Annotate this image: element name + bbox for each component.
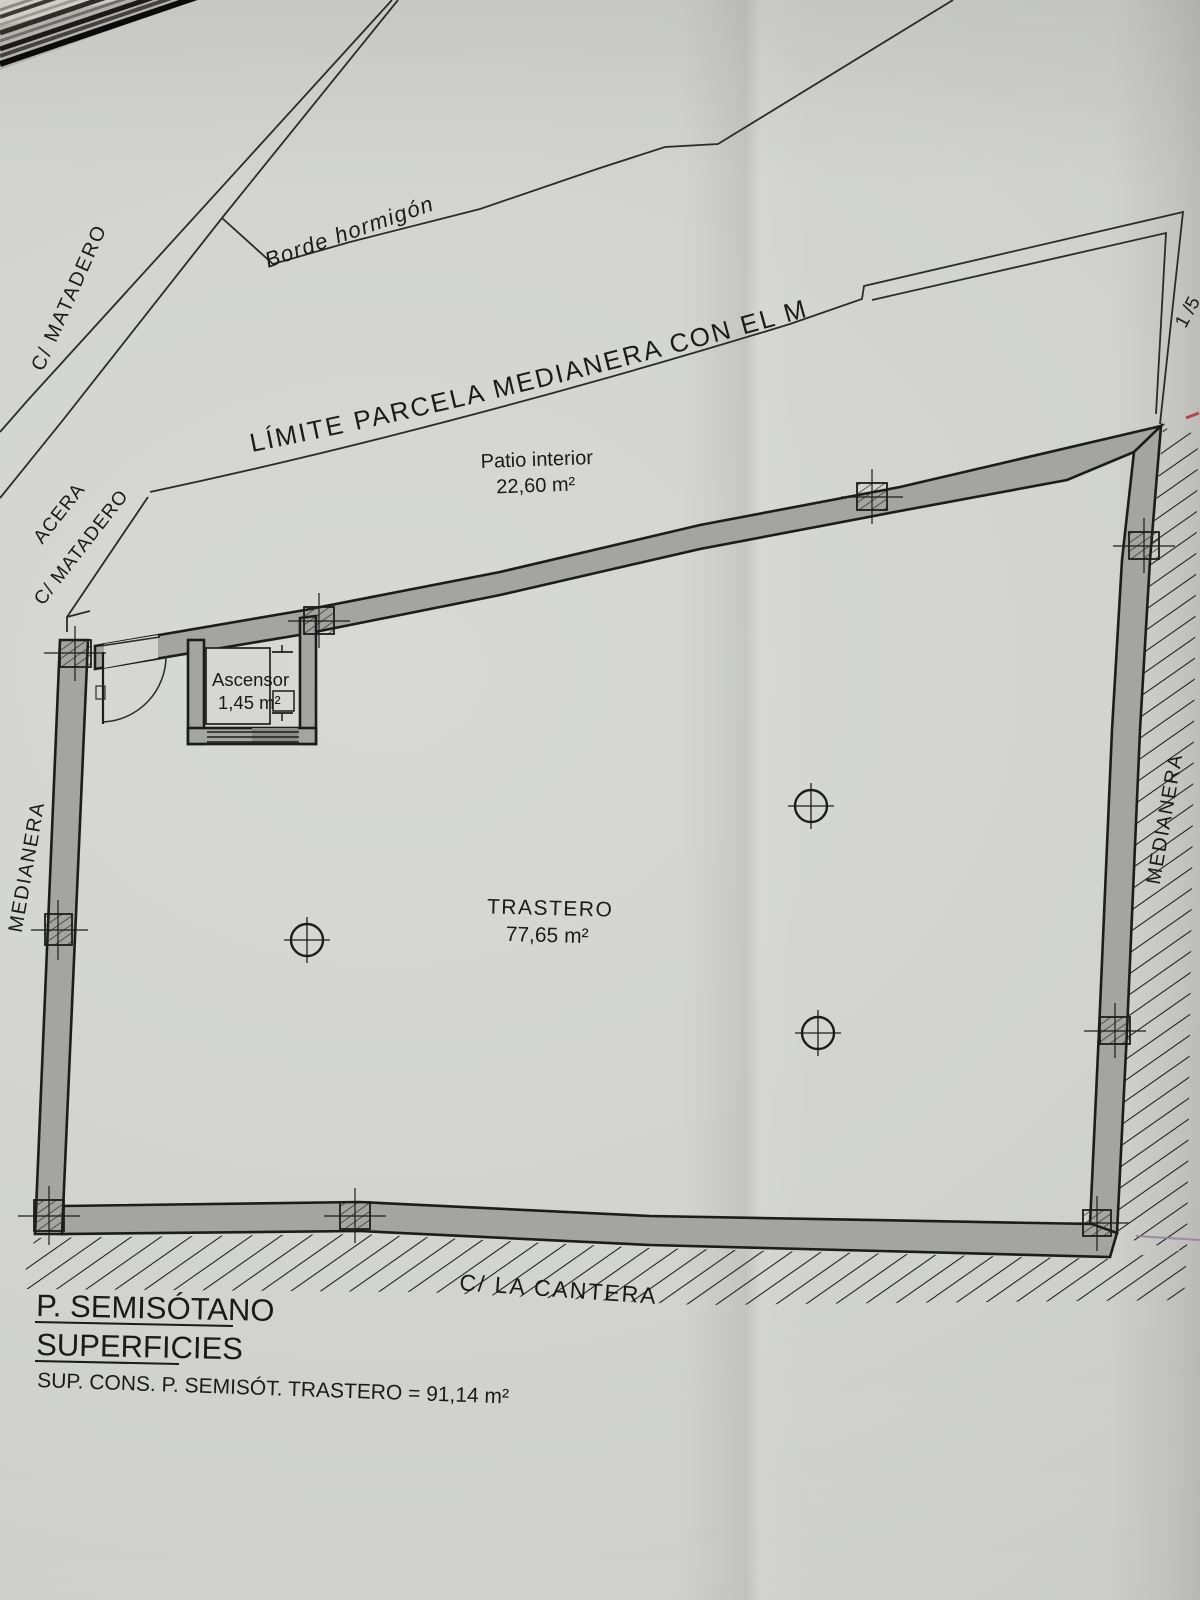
- trastero-label: TRASTERO: [487, 895, 614, 921]
- edge-scale-fragment: 1 /5: [1171, 293, 1200, 331]
- scanned-floor-plan-photo: C/ MATADERO Borde hormigón LÍMITE PARCEL…: [0, 0, 1200, 1600]
- limite-parcela-label: LÍMITE PARCELA MEDIANERA CON EL MATADERO: [0, 0, 811, 458]
- limite-parcela-inner-line: [872, 233, 1166, 414]
- footer-subtitle: SUPERFICIES: [36, 1327, 243, 1366]
- ascensor-label: Ascensor: [212, 669, 289, 690]
- ascensor-area-label: 1,45 m²: [218, 692, 281, 713]
- survey-point: [788, 783, 834, 829]
- trastero-area-label: 77,65 m²: [505, 923, 588, 948]
- lift-sill-block: [252, 728, 298, 742]
- door-opening: [96, 635, 166, 724]
- borde-hormigon-line: [222, 0, 953, 264]
- medianera-left-label: MEDIANERA: [5, 800, 50, 934]
- column-marker: [288, 593, 350, 648]
- patio-area-label: 22,60 m²: [496, 474, 576, 499]
- column-marker: [44, 626, 106, 681]
- page-stack-edge: [0, 0, 200, 70]
- boundary-lines: [0, 0, 1183, 632]
- red-pen-mark: [1186, 413, 1199, 418]
- borde-hormigon-label: Borde hormigón: [261, 191, 437, 273]
- street-edge-line-far: [0, 0, 392, 432]
- walls: [35, 426, 1161, 1257]
- floor-plan-drawing: C/ MATADERO Borde hormigón LÍMITE PARCEL…: [0, 0, 1200, 1600]
- top-wall: [95, 426, 1161, 669]
- patio-label: Patio interior: [480, 447, 593, 473]
- footer-surface-line: SUP. CONS. P. SEMISÓT. TRASTERO = 91,14 …: [37, 1369, 510, 1408]
- survey-point: [795, 1010, 841, 1056]
- lift-shaft-right-wall: [300, 616, 316, 744]
- survey-point: [284, 917, 330, 963]
- street-label-matadero-top: C/ MATADERO: [27, 221, 111, 374]
- column-markers: [18, 469, 1175, 1251]
- footer-block: P. SEMISÓTANO SUPERFICIES SUP. CONS. P. …: [35, 1288, 509, 1408]
- column-marker: [18, 1186, 80, 1245]
